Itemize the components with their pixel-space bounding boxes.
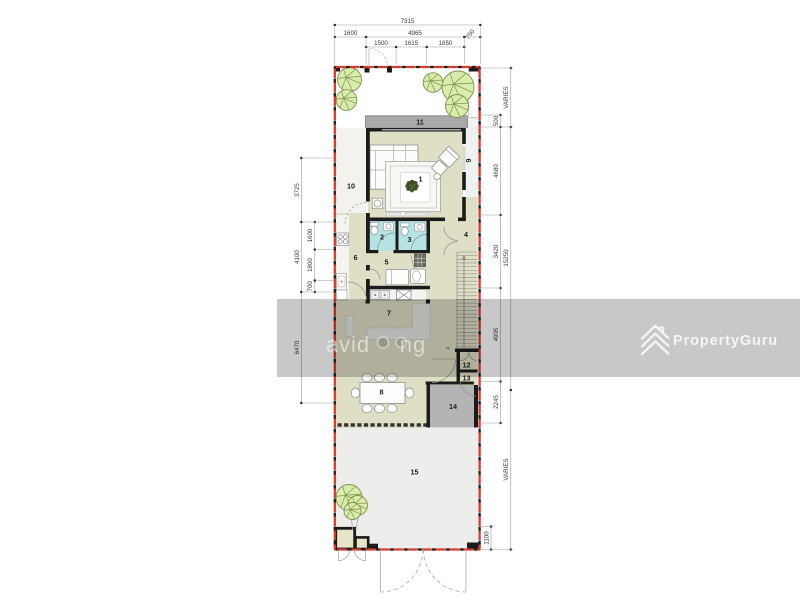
svg-text:2245: 2245 [493, 395, 500, 409]
svg-text:10: 10 [347, 182, 355, 191]
svg-text:1850: 1850 [439, 40, 453, 47]
svg-text:VARIES: VARIES [503, 86, 510, 108]
svg-text:7315: 7315 [401, 18, 415, 25]
svg-text:PropertyGuru: PropertyGuru [673, 333, 778, 349]
svg-text:1100: 1100 [483, 531, 490, 545]
svg-text:9: 9 [464, 159, 473, 163]
svg-text:2: 2 [380, 233, 384, 242]
svg-text:11: 11 [416, 118, 424, 127]
svg-text:4: 4 [464, 230, 468, 239]
svg-text:3725: 3725 [294, 183, 301, 197]
svg-text:ng: ng [400, 332, 426, 357]
svg-text:6: 6 [354, 253, 358, 262]
svg-text:1800: 1800 [307, 258, 314, 272]
svg-text:1600: 1600 [344, 30, 358, 37]
svg-text:4100: 4100 [294, 250, 301, 264]
svg-text:700: 700 [307, 281, 314, 292]
svg-text:3: 3 [408, 235, 412, 244]
svg-text:4965: 4965 [408, 30, 422, 37]
svg-text:15250: 15250 [503, 249, 510, 267]
svg-text:VARIES: VARIES [503, 458, 510, 480]
svg-text:15: 15 [411, 468, 419, 477]
svg-text:avid: avid [326, 332, 370, 357]
svg-text:500: 500 [493, 115, 500, 126]
svg-text:1500: 1500 [374, 40, 388, 47]
svg-text:1615: 1615 [404, 40, 418, 47]
svg-text:14: 14 [449, 402, 457, 411]
svg-text:3420: 3420 [493, 244, 500, 258]
svg-text:1: 1 [419, 175, 423, 184]
svg-text:5: 5 [385, 258, 389, 267]
svg-text:1600: 1600 [307, 228, 314, 242]
svg-text:4680: 4680 [493, 164, 500, 178]
svg-text:8: 8 [380, 388, 384, 397]
